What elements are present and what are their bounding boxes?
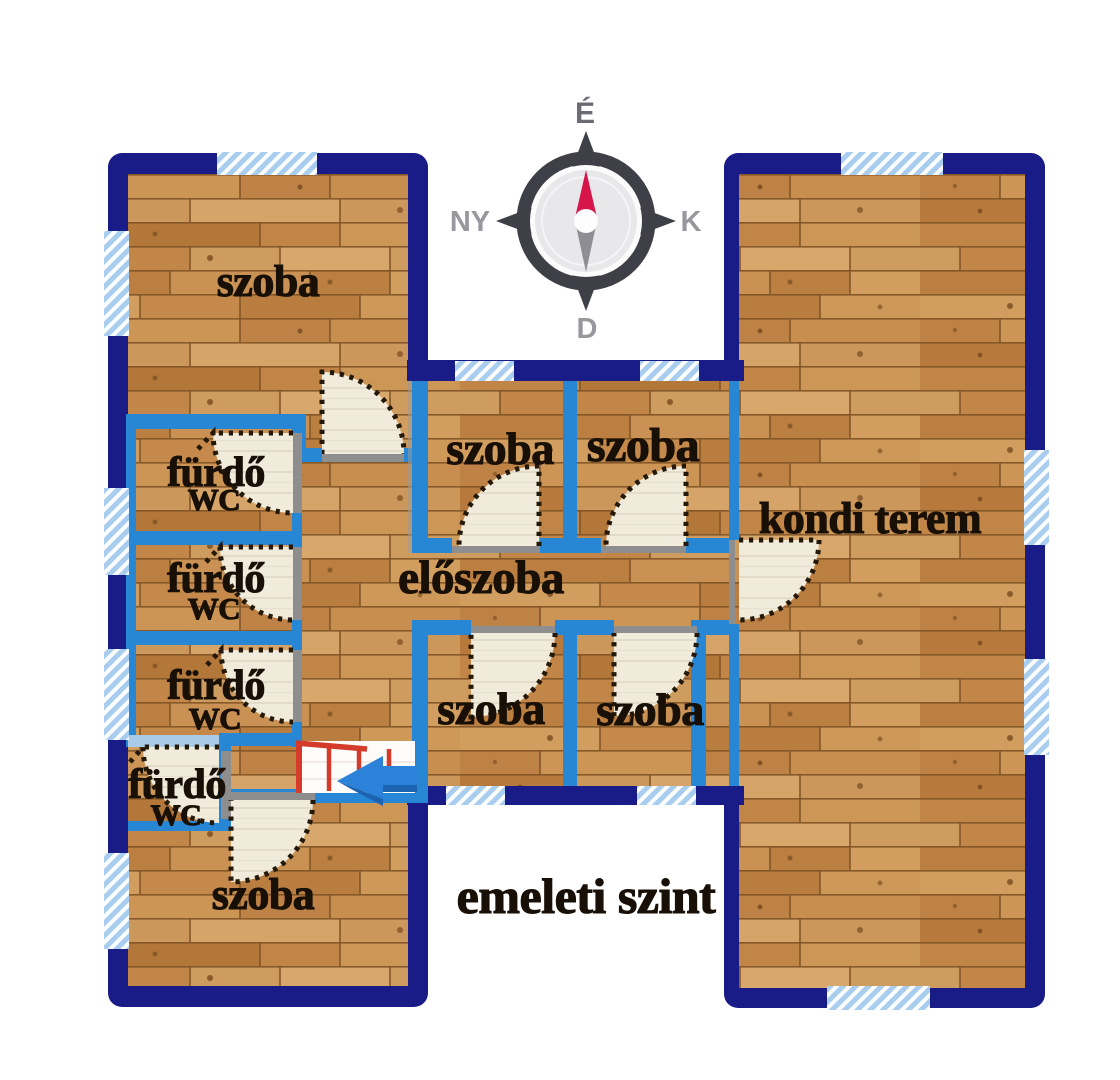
- svg-text:szoba: szoba: [446, 423, 554, 474]
- svg-text:WC: WC: [188, 482, 240, 517]
- svg-text:szoba: szoba: [217, 257, 320, 306]
- svg-text:szoba: szoba: [212, 870, 315, 919]
- svg-text:WC: WC: [189, 701, 241, 736]
- svg-text:szoba: szoba: [587, 419, 700, 472]
- svg-text:kondi terem: kondi terem: [759, 494, 981, 543]
- svg-text:NY: NY: [450, 206, 490, 238]
- svg-text:szoba: szoba: [437, 683, 545, 734]
- svg-text:K: K: [681, 206, 702, 238]
- svg-text:É: É: [575, 96, 595, 130]
- svg-text:emeleti szint: emeleti szint: [457, 868, 717, 924]
- svg-text:D: D: [577, 313, 598, 345]
- svg-text:WC: WC: [188, 591, 240, 626]
- svg-text:WC: WC: [151, 799, 202, 832]
- svg-text:szoba: szoba: [596, 684, 704, 735]
- svg-text:előszoba: előszoba: [398, 552, 564, 604]
